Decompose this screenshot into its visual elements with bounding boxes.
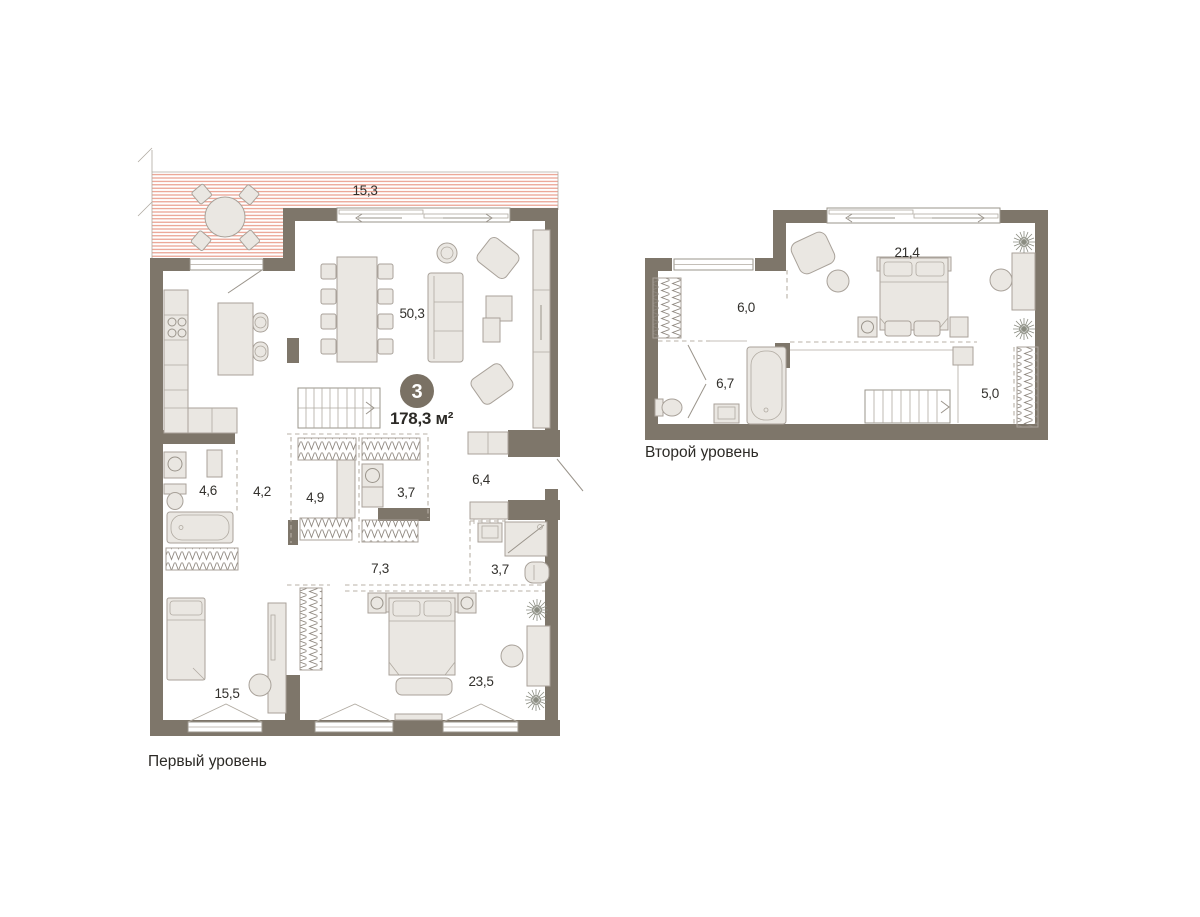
room-area-label: 7,3 xyxy=(371,561,389,576)
desk xyxy=(527,626,550,686)
toilet xyxy=(655,399,682,416)
first-level-plan: 15,3 50,3 4,6 4,2 4,9 3,7 6,4 7,3 3,7 15… xyxy=(138,148,583,770)
kitchen-window xyxy=(190,259,263,293)
staircase xyxy=(790,342,977,423)
total-area-label: 178,3 м² xyxy=(390,409,454,428)
apartment-badge: 3 178,3 м² xyxy=(390,374,454,428)
walls xyxy=(645,210,1048,440)
shower-room xyxy=(470,521,549,584)
bathroom-cabinet xyxy=(207,450,222,477)
room-area-label: 6,7 xyxy=(716,376,734,391)
floor-plan-canvas: 15,3 50,3 4,6 4,2 4,9 3,7 6,4 7,3 3,7 15… xyxy=(0,0,1200,917)
entrance-door xyxy=(545,457,583,491)
toilet xyxy=(164,484,186,510)
room-area-label: 3,7 xyxy=(397,485,415,500)
double-bed xyxy=(386,593,458,675)
room-area-label: 50,3 xyxy=(399,306,424,321)
room-area-label: 3,7 xyxy=(491,562,509,577)
wardrobe-cabinet xyxy=(166,548,238,570)
boundary-ticks xyxy=(138,148,152,216)
room-area-label: 4,2 xyxy=(253,484,271,499)
door-swing xyxy=(688,345,706,418)
wardrobe-cabinet xyxy=(653,278,681,338)
door-swing xyxy=(557,459,583,491)
single-bed xyxy=(167,598,205,680)
wardrobe-cabinet xyxy=(300,588,322,670)
door-swing xyxy=(228,270,262,293)
room-area-label: 15,3 xyxy=(352,183,377,198)
tv-console xyxy=(395,714,442,720)
wardrobe-area xyxy=(1014,347,1038,427)
desk-chair xyxy=(501,645,523,667)
sink xyxy=(478,523,502,542)
kitchen-island xyxy=(218,303,268,375)
desk-chair xyxy=(249,674,271,696)
bathtub xyxy=(167,512,233,543)
desk xyxy=(1012,253,1035,310)
bench-cushion xyxy=(914,321,940,336)
desk xyxy=(268,603,286,713)
tv xyxy=(287,338,299,363)
bathtub xyxy=(747,347,786,424)
nightstand xyxy=(858,317,877,337)
room-area-label: 21,4 xyxy=(894,245,920,260)
radiator xyxy=(525,562,549,583)
second-level-plan: 6,0 6,7 21,4 5,0 Второй уровень xyxy=(645,208,1048,461)
plant xyxy=(526,599,548,621)
tall-cabinet xyxy=(533,230,550,428)
room-area-label: 4,6 xyxy=(199,483,217,498)
armchair xyxy=(475,235,522,281)
bottom-windows xyxy=(188,704,518,732)
pouf xyxy=(827,270,849,292)
armchair xyxy=(469,361,516,406)
room-area-label: 15,5 xyxy=(214,686,239,701)
nightstand xyxy=(950,317,968,337)
hall-window xyxy=(674,259,753,270)
room-area-label: 23,5 xyxy=(468,674,493,689)
rooms-count: 3 xyxy=(411,381,422,403)
double-bed xyxy=(877,257,951,330)
room-area-label: 6,0 xyxy=(737,300,755,315)
shower xyxy=(505,522,547,556)
sink xyxy=(714,404,739,423)
room-area-label: 6,4 xyxy=(472,472,491,487)
master-bedroom-furniture xyxy=(368,593,550,711)
room-area-label: 4,9 xyxy=(306,490,324,505)
sliding-window xyxy=(827,208,1000,223)
room-area-label: 5,0 xyxy=(981,386,999,401)
sofa xyxy=(428,273,463,362)
plant xyxy=(1013,318,1035,340)
side-tables xyxy=(483,296,512,342)
hooks-shelf xyxy=(470,502,508,519)
plant xyxy=(1013,231,1035,253)
plant xyxy=(525,689,547,711)
bench xyxy=(396,678,452,695)
armchair xyxy=(789,230,838,277)
coffee-table xyxy=(437,243,457,263)
staircase xyxy=(298,388,380,428)
bench-cushion xyxy=(885,321,911,336)
duct xyxy=(953,347,973,365)
sliding-window xyxy=(337,208,510,222)
desk-chair xyxy=(990,269,1012,291)
vanity xyxy=(164,452,186,478)
level-caption: Первый уровень xyxy=(148,753,267,770)
corridor-partitions xyxy=(287,585,545,591)
level-caption: Второй уровень xyxy=(645,444,759,461)
wardrobe-cabinet xyxy=(1017,347,1038,427)
dining-table xyxy=(321,257,393,362)
washing-machine xyxy=(362,464,383,487)
